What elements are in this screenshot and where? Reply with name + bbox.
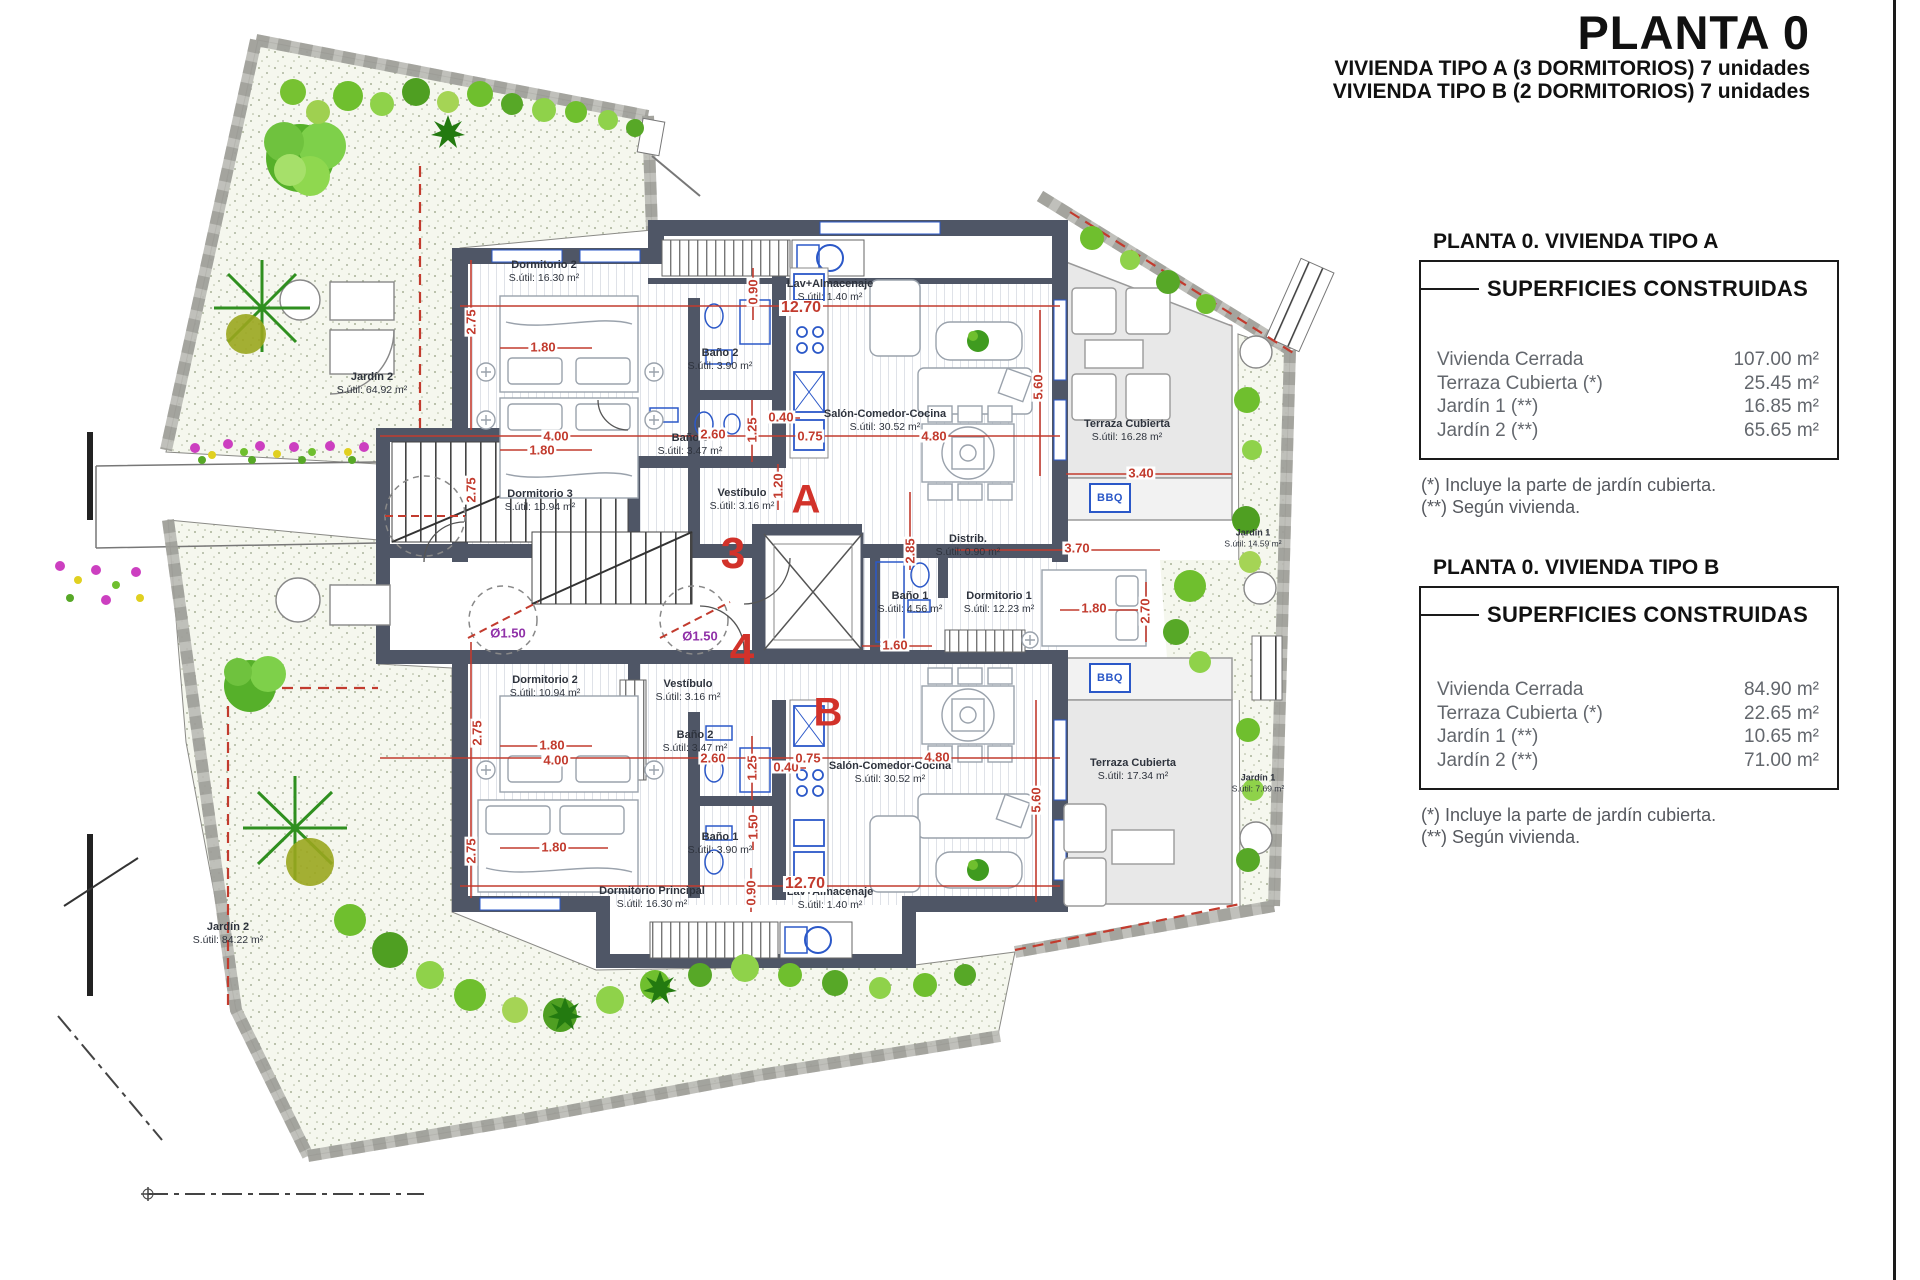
dimension-label: 0.40	[766, 411, 795, 424]
dimension-label: 1.25	[746, 753, 759, 782]
panel-header: PLANTA 0. VIVIENDA TIPO A	[1433, 230, 1839, 254]
room-label: Baño 1S.útil: 3.90 m²	[688, 831, 753, 857]
dimension-label: 1.20	[772, 471, 785, 500]
garden-label: Jardín 2S.útil: 64.92 m²	[337, 371, 408, 397]
dimension-label: 12.70	[783, 876, 827, 892]
room-label: Distrib.S.útil: 0.90 m²	[936, 533, 1001, 559]
dimension-label: 1.80	[539, 841, 568, 854]
dimension-label: 12.70	[779, 300, 823, 316]
dimension-label: 2.75	[465, 307, 478, 336]
room-label: Baño 1S.útil: 4.56 m²	[878, 590, 943, 616]
sheet-border-line	[1893, 0, 1896, 1280]
room-label: Dormitorio 1S.útil: 12.23 m²	[964, 590, 1035, 616]
dimension-label: 4.00	[541, 430, 570, 443]
dimension-label: 4.80	[919, 430, 948, 443]
table-row: Terraza Cubierta (*)25.45 m²	[1437, 372, 1819, 396]
elevator	[764, 534, 862, 650]
title-block: PLANTA 0 VIVIENDA TIPO A (3 DORMITORIOS)…	[1240, 8, 1810, 103]
table-notes: (*) Incluye la parte de jardín cubierta.…	[1421, 804, 1839, 848]
room-label: Dormitorio 2S.útil: 10.94 m²	[510, 674, 581, 700]
dimension-label: 1.50	[747, 812, 760, 841]
surfaces-panel-tipo-b: PLANTA 0. VIVIENDA TIPO B SUPERFICIES CO…	[1419, 556, 1839, 848]
unit-b-marker: B	[814, 691, 843, 736]
dimension-label: 2.75	[471, 718, 484, 747]
dimension-label: 0.90	[745, 878, 758, 907]
table-notes: (*) Incluye la parte de jardín cubierta.…	[1421, 474, 1839, 518]
table-row: Terraza Cubierta (*)22.65 m²	[1437, 702, 1819, 726]
turning-circle-label: Ø1.50	[680, 630, 719, 643]
subtitle-tipo-a: VIVIENDA TIPO A (3 DORMITORIOS) 7 unidad…	[1240, 57, 1810, 80]
table-row: Jardín 2 (**)71.00 m²	[1437, 749, 1819, 773]
room-label: Baño 2S.útil: 3.90 m²	[688, 347, 753, 373]
dimension-label: 0.90	[747, 277, 760, 306]
unit-a-marker: A	[792, 478, 821, 523]
table-row: Vivienda Cerrada107.00 m²	[1437, 348, 1819, 372]
dimension-label: 4.00	[541, 754, 570, 767]
bbq-label: BBQ	[1097, 492, 1123, 504]
dimension-label: 1.80	[527, 444, 556, 457]
garden-label: Jardín 2S.útil: 84.22 m²	[193, 921, 264, 947]
room-label: Terraza CubiertaS.útil: 16.28 m²	[1084, 418, 1170, 444]
dimension-label: 2.70	[1139, 596, 1152, 625]
turning-circle-label: Ø1.50	[488, 627, 527, 640]
table-title: SUPERFICIES CONSTRUIDAS	[1421, 276, 1819, 302]
table-row: Vivienda Cerrada84.90 m²	[1437, 678, 1819, 702]
dimension-label: 2.60	[698, 752, 727, 765]
surfaces-table: SUPERFICIES CONSTRUIDAS Vivienda Cerrada…	[1419, 586, 1839, 790]
table-row: Jardín 2 (**)65.65 m²	[1437, 419, 1819, 443]
dimension-label: 1.80	[1079, 602, 1108, 615]
garden-label: Jardín 1S.útil: 14.59 m²	[1224, 528, 1281, 549]
dimension-label: 1.80	[528, 341, 557, 354]
garden-label: Jardín 1S.útil: 7.69 m²	[1232, 773, 1284, 794]
surfaces-panel-tipo-a: PLANTA 0. VIVIENDA TIPO A SUPERFICIES CO…	[1419, 230, 1839, 518]
dimension-label: 1.25	[746, 415, 759, 444]
dimension-label: 3.70	[1062, 542, 1091, 555]
floor-plan-page: Dormitorio 2S.útil: 16.30 m² Lav+Almacen…	[0, 0, 1920, 1280]
subtitle-tipo-b: VIVIENDA TIPO B (2 DORMITORIOS) 7 unidad…	[1240, 80, 1810, 103]
dimension-label: 0.75	[793, 752, 822, 765]
room-label: VestíbuloS.útil: 3.16 m²	[656, 678, 721, 704]
bbq-label: BBQ	[1097, 672, 1123, 684]
dimension-label: 3.40	[1126, 467, 1155, 480]
dimension-label: 4.80	[922, 751, 951, 764]
surfaces-table: SUPERFICIES CONSTRUIDAS Vivienda Cerrada…	[1419, 260, 1839, 460]
room-label: Terraza CubiertaS.útil: 17.34 m²	[1090, 757, 1176, 783]
dimension-label: 2.85	[904, 536, 917, 565]
room-label: VestíbuloS.útil: 3.16 m²	[710, 487, 775, 513]
dimension-label: 0.75	[795, 430, 824, 443]
table-row: Jardín 1 (**)10.65 m²	[1437, 725, 1819, 749]
dimension-label: 2.75	[465, 475, 478, 504]
dimension-label: 5.60	[1032, 372, 1045, 401]
portal-4-marker: 4	[730, 625, 754, 675]
dimension-label: 1.60	[880, 639, 909, 652]
panel-header: PLANTA 0. VIVIENDA TIPO B	[1433, 556, 1839, 580]
dimension-label: 1.80	[537, 739, 566, 752]
dimension-label: 2.60	[698, 428, 727, 441]
room-label: Dormitorio 3S.útil: 10.94 m²	[505, 488, 576, 514]
portal-3-marker: 3	[721, 529, 745, 579]
room-label: Dormitorio PrincipalS.útil: 16.30 m²	[599, 885, 705, 911]
table-title: SUPERFICIES CONSTRUIDAS	[1421, 602, 1819, 628]
dimension-label: 2.75	[465, 836, 478, 865]
table-row: Jardín 1 (**)16.85 m²	[1437, 395, 1819, 419]
room-label: Dormitorio 2S.útil: 16.30 m²	[509, 259, 580, 285]
page-title: PLANTA 0	[1240, 8, 1810, 57]
dimension-label: 5.60	[1030, 785, 1043, 814]
